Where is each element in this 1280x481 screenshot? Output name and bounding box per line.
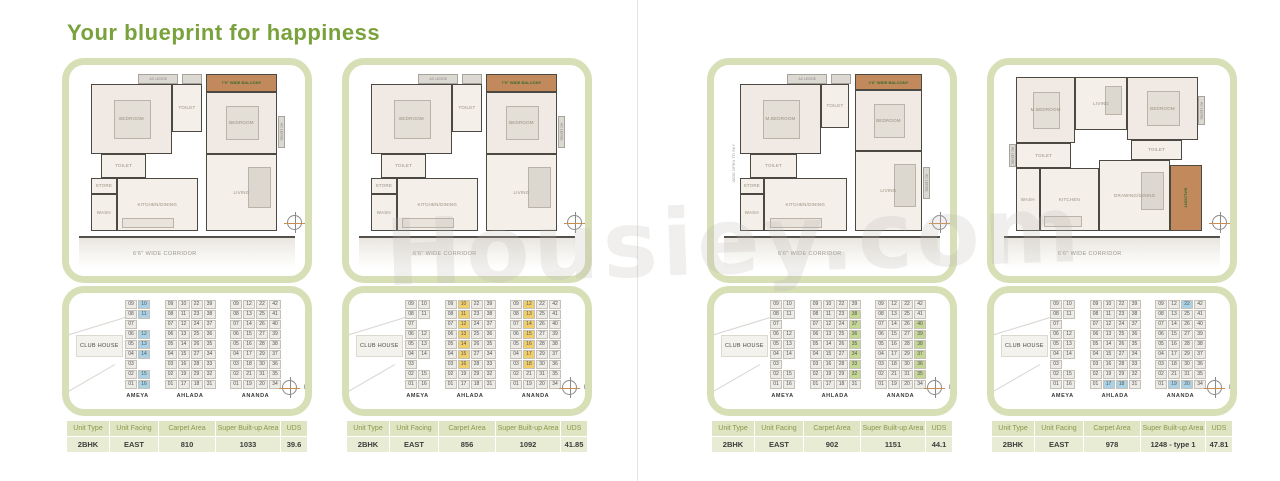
unit-cell: 34 (1129, 350, 1141, 359)
unit-cell: 36 (204, 330, 216, 339)
unit-cell: 12 (823, 320, 835, 329)
unit-cell: 22 (471, 300, 483, 309)
unit-spec-table: Unit TypeUnit FacingCarpet AreaSuper Bui… (992, 421, 1232, 452)
room-bedroom: BEDROOM (1127, 77, 1198, 139)
value-super-built-up-area: 1248 - type 1 (1141, 437, 1205, 452)
unit-cell: 19 (823, 370, 835, 379)
unit-cell: 36 (1129, 330, 1141, 339)
header-super-built-up-area: Super Built-up Area (496, 421, 560, 436)
unit-cell: 25 (1181, 310, 1193, 319)
unit-cell: 22 (1116, 300, 1128, 309)
room-label: 2'6" WIDE BALCONY (869, 80, 909, 85)
unit-cell: 37 (484, 320, 496, 329)
unit-cell: 07 (770, 320, 782, 329)
unit-cell: 07 (810, 320, 822, 329)
compass-icon: N (287, 215, 302, 230)
table-value-row: 2BHKEAST856109241.85 (347, 437, 587, 452)
site-boundary-line (343, 364, 395, 395)
unit-cell: 14 (418, 350, 430, 359)
header-carpet-area: Carpet Area (1084, 421, 1140, 436)
unit-cell: 33 (484, 360, 496, 369)
unit-cell: 15 (178, 350, 190, 359)
unit-cell: 06 (510, 330, 522, 339)
unit-cell: 02 (510, 370, 522, 379)
unit-cell: 16 (1168, 340, 1180, 349)
table-value-row: 2BHKEAST902115144.1 (712, 437, 952, 452)
unit-cell: 08 (875, 310, 887, 319)
unit-cell: 38 (269, 340, 281, 349)
room-toilet: TOILET (821, 84, 849, 129)
room-label: LIVING (1093, 101, 1109, 106)
unit-cell: 21 (523, 370, 535, 379)
ac-ledge-ac-ledge: AC LEDGE (138, 74, 178, 84)
unit-cell: 32 (1129, 370, 1141, 379)
unit-cell: 14 (458, 340, 470, 349)
unit-cell: 31 (1181, 370, 1193, 379)
unit-cell: 10 (418, 300, 430, 309)
unit-cell: 05 (1050, 340, 1062, 349)
unit-cell: 04 (165, 350, 177, 359)
room-label: M.BEDROOM (1031, 107, 1061, 112)
room-label: BEDROOM (119, 116, 144, 121)
value-uds: 41.85 (561, 437, 587, 452)
unit-cell: 11 (783, 310, 795, 319)
unit-cell: 14 (243, 320, 255, 329)
value-carpet-area: 856 (439, 437, 495, 452)
unit-cell: 06 (810, 330, 822, 339)
value-uds: 47.81 (1206, 437, 1232, 452)
unit-cell: 05 (770, 340, 782, 349)
floorplan-panel: AC LEDGE2'6" WIDE BALCONYM.BEDROOMTOILET… (707, 58, 957, 283)
unit-cell: 28 (471, 360, 483, 369)
room-store: STORE (371, 178, 397, 194)
tower-ahlada: 0908070605040302011011121314151619172223… (445, 300, 496, 399)
unit-cell: 41 (269, 310, 281, 319)
unit-cell: 34 (484, 350, 496, 359)
unit-cell: 27 (1116, 350, 1128, 359)
tower-ananda: 0908070605040302011213141516171821192225… (875, 300, 926, 399)
unit-cell: 10 (458, 300, 470, 309)
unit-cell: 33 (849, 360, 861, 369)
unit-cell: 08 (165, 310, 177, 319)
header-unit-facing: Unit Facing (110, 421, 158, 436)
clubhouse-label: CLUB HOUSE (1001, 335, 1048, 357)
unit-cell: 15 (523, 330, 535, 339)
tower-ahlada: 0908070605040302011011121314151619172223… (165, 300, 216, 399)
table-value-row: 2BHKEAST9781248 - type 147.81 (992, 437, 1232, 452)
unit-cell: 15 (1103, 350, 1115, 359)
tower-label: AHLADA (822, 393, 849, 399)
room-toilet: TOILET (101, 154, 147, 178)
unit-cell: 16 (138, 380, 150, 389)
balcony-7-0-wide-balcony: 7'0" WIDE BALCONY (486, 74, 557, 92)
clubhouse-label: CLUB HOUSE (721, 335, 768, 357)
unit-cell: 22 (256, 300, 268, 309)
unit-cell: 02 (445, 370, 457, 379)
center-divider (637, 0, 638, 481)
unit-cell: 04 (1090, 350, 1102, 359)
unit-cell: 28 (536, 340, 548, 349)
unit-cell: 19 (888, 380, 900, 389)
unit-cell: 05 (165, 340, 177, 349)
room-bedroom: BEDROOM (855, 90, 922, 151)
unit-cell: 42 (1194, 300, 1206, 309)
unit-cell: 27 (836, 350, 848, 359)
unit-cell: 27 (471, 350, 483, 359)
unit-cell: 04 (1155, 350, 1167, 359)
unit-cell: 13 (888, 310, 900, 319)
tower-label: AHLADA (1102, 393, 1129, 399)
unit-cell: 19 (1103, 370, 1115, 379)
unit-cell: 01 (125, 380, 137, 389)
room-label: BEDROOM (876, 118, 901, 123)
floorplan-panel: AC LEDGE7'0" WIDE BALCONYBEDROOMTOILETBE… (62, 58, 312, 283)
unit-cell: 25 (1116, 330, 1128, 339)
unit-cell: 07 (1155, 320, 1167, 329)
unit-cell: 02 (125, 370, 137, 379)
unit-cell: 37 (269, 350, 281, 359)
unit-cell: 03 (875, 360, 887, 369)
unit-cell: 11 (823, 310, 835, 319)
value-unit-facing: EAST (110, 437, 158, 452)
floorplan-drawing: AC LEDGE7'0" WIDE BALCONYBEDROOMTOILETBE… (87, 74, 285, 234)
unit-cell: 01 (230, 380, 242, 389)
blueprint-page: Your blueprint for happiness Housiey.com… (0, 0, 1280, 481)
unit-cell: 36 (269, 360, 281, 369)
header-uds: UDS (561, 421, 587, 436)
unit-cell: 11 (458, 310, 470, 319)
value-unit-type: 2BHK (712, 437, 754, 452)
unit-cell: 13 (458, 330, 470, 339)
compass-icon: N (1212, 215, 1227, 230)
unit-cell: 13 (138, 340, 150, 349)
north-label: N (309, 220, 312, 226)
unit-cell: 31 (849, 380, 861, 389)
unit-cell: 01 (165, 380, 177, 389)
floorplan-card-4: M.BEDROOMLIVINGBEDROOMTOILETTOILETWASHKI… (987, 58, 1237, 453)
unit-cell: 03 (1090, 360, 1102, 369)
unit-cell: 08 (405, 310, 417, 319)
unit-cell: 42 (269, 300, 281, 309)
unit-cell: 39 (914, 330, 926, 339)
room-label: AC LEDGE (429, 77, 447, 81)
unit-cell: 17 (888, 350, 900, 359)
room-label: AC LEDGE (149, 77, 167, 81)
unit-cell: 03 (810, 360, 822, 369)
unit-cell: 31 (1129, 380, 1141, 389)
unit-cell: 37 (1129, 320, 1141, 329)
unit-cell: 11 (418, 310, 430, 319)
table-header-row: Unit TypeUnit FacingCarpet AreaSuper Bui… (992, 421, 1232, 436)
floorplan-drawing: AC LEDGE2'6" WIDE BALCONYM.BEDROOMTOILET… (732, 74, 930, 234)
room-label: TOILET (1148, 147, 1165, 152)
unit-cell: 09 (770, 300, 782, 309)
unit-cell: 26 (836, 340, 848, 349)
unit-cell: 09 (1050, 300, 1062, 309)
corridor-label: 6'6" WIDE CORRIDOR (413, 251, 477, 257)
room-living: LIVING (1075, 77, 1126, 130)
north-label: N (1234, 220, 1237, 226)
unit-cell: 18 (523, 360, 535, 369)
towers: 09080706050403020110111213141516AMEYA090… (770, 300, 926, 399)
unit-cell: 16 (783, 380, 795, 389)
header-uds: UDS (281, 421, 307, 436)
unit-cell: 06 (125, 330, 137, 339)
unit-cell: 25 (471, 330, 483, 339)
room-label: KITCHEN (1059, 197, 1080, 202)
tower-ananda: 0908070605040302011213141516171821192225… (1155, 300, 1206, 399)
unit-cell: 38 (549, 340, 561, 349)
unit-cell: 17 (178, 380, 190, 389)
room-label: AC LEDGE (1200, 102, 1204, 120)
unit-cell: 34 (849, 350, 861, 359)
unit-cell: 30 (901, 360, 913, 369)
unit-cell: 17 (523, 350, 535, 359)
unit-cell: 29 (191, 370, 203, 379)
unit-cell: 26 (901, 320, 913, 329)
unit-cell: 07 (510, 320, 522, 329)
floorplan-drawing: AC LEDGE7'0" WIDE BALCONYBEDROOMTOILETBE… (367, 74, 565, 234)
unit-cell: 27 (1181, 330, 1193, 339)
unit-cell: 05 (445, 340, 457, 349)
room-bedroom: BEDROOM (486, 92, 557, 154)
room-wash: WASH (371, 194, 397, 231)
unit-cell: 14 (823, 340, 835, 349)
unit-cell: 19 (523, 380, 535, 389)
towers: 09080706050403020110111213141516AMEYA090… (405, 300, 561, 399)
unit-cell: 05 (510, 340, 522, 349)
value-unit-type: 2BHK (347, 437, 389, 452)
unit-cell: 07 (125, 320, 137, 329)
unit-cell: 29 (256, 350, 268, 359)
unit-cell: 30 (1181, 360, 1193, 369)
unit-cell: 03 (405, 360, 417, 369)
unit-cell: 36 (549, 360, 561, 369)
unit-cell: 40 (549, 320, 561, 329)
unit-cell: 40 (269, 320, 281, 329)
unit-cell: 13 (243, 310, 255, 319)
room-label: TOILET (115, 163, 132, 168)
unit-cell: 42 (549, 300, 561, 309)
unit-cell: 18 (1168, 360, 1180, 369)
unit-cell: 12 (1103, 320, 1115, 329)
unit-cell: 35 (269, 370, 281, 379)
unit-cell: 12 (888, 300, 900, 309)
unit-cell: 06 (1155, 330, 1167, 339)
unit-cell: 39 (484, 300, 496, 309)
unit-cell: 04 (230, 350, 242, 359)
sitemap-panel: CLUB HOUSE 09080706050403020110111213141… (987, 286, 1237, 416)
unit-cell: 41 (549, 310, 561, 319)
unit-cell: 23 (1116, 310, 1128, 319)
clubhouse-label: CLUB HOUSE (356, 335, 403, 357)
compass-icon: N (562, 380, 577, 395)
header-super-built-up-area: Super Built-up Area (861, 421, 925, 436)
unit-cell: 38 (1129, 310, 1141, 319)
unit-cell: 28 (1181, 340, 1193, 349)
unit-cell: 38 (1194, 340, 1206, 349)
compass-icon: N (927, 380, 942, 395)
compass-icon: N (932, 215, 947, 230)
north-label: N (954, 220, 957, 226)
unit-cell: 03 (1050, 360, 1062, 369)
tower-label: AHLADA (177, 393, 204, 399)
unit-cell: 09 (230, 300, 242, 309)
site-boundary-line (63, 364, 115, 395)
table-header-row: Unit TypeUnit FacingCarpet AreaSuper Bui… (67, 421, 307, 436)
unit-cell: 41 (914, 310, 926, 319)
unit-cell: 20 (536, 380, 548, 389)
value-super-built-up-area: 1033 (216, 437, 280, 452)
room-bedroom: BEDROOM (371, 84, 452, 154)
unit-cell: 12 (523, 300, 535, 309)
unit-cell: 36 (484, 330, 496, 339)
unit-cell: 18 (191, 380, 203, 389)
unit-cell: 24 (471, 320, 483, 329)
unit-cell: 38 (849, 310, 861, 319)
unit-cell: 04 (405, 350, 417, 359)
unit-cell: 03 (125, 360, 137, 369)
compass-icon: N (1207, 380, 1222, 395)
unit-cell: 02 (810, 370, 822, 379)
room-label: STORE (376, 183, 392, 188)
unit-cell: 02 (1050, 370, 1062, 379)
unit-cell: 23 (836, 310, 848, 319)
unit-cell: 28 (1116, 360, 1128, 369)
room-label: LIVING (513, 190, 529, 195)
room-kitchen-dining: KITCHEN/DINING (397, 178, 478, 231)
unit-cell: 03 (230, 360, 242, 369)
compass-icon: N (567, 215, 582, 230)
unit-cell: 27 (901, 330, 913, 339)
room-label: TOILET (765, 163, 782, 168)
unit-cell: 06 (230, 330, 242, 339)
ac-ledge-ac-ledge: AC LEDGE (278, 116, 285, 148)
room-wash: WASH (740, 194, 764, 231)
unit-cell: 02 (405, 370, 417, 379)
unit-cell: 13 (1168, 310, 1180, 319)
open-to-sky-wide-open-to-sky: WIDE OPEN TO SKY (730, 119, 738, 207)
unit-cell: 08 (810, 310, 822, 319)
unit-cell: 06 (165, 330, 177, 339)
unit-cell: 09 (1090, 300, 1102, 309)
tower-label: AMEYA (406, 393, 428, 399)
unit-cell: 05 (1090, 340, 1102, 349)
unit-cell: 04 (875, 350, 887, 359)
floorplan-card-2: AC LEDGE7'0" WIDE BALCONYBEDROOMTOILETBE… (342, 58, 592, 453)
room-label: 7'0" WIDE BALCONY (502, 80, 542, 85)
unit-cell: 37 (549, 350, 561, 359)
unit-cell: 08 (1050, 310, 1062, 319)
ac-ledge-ac-ledge: AC LEDGE (1009, 144, 1016, 166)
unit-cell: 10 (1103, 300, 1115, 309)
tower-label: AMEYA (1051, 393, 1073, 399)
room-label: AC LEDGE (280, 123, 284, 141)
value-unit-facing: EAST (755, 437, 803, 452)
unit-cell: 12 (458, 320, 470, 329)
header-carpet-area: Carpet Area (439, 421, 495, 436)
room-label: KITCHEN/DINING (785, 202, 825, 207)
header-carpet-area: Carpet Area (159, 421, 215, 436)
unit-cell: 19 (178, 370, 190, 379)
room-label: AC LEDGE (798, 77, 816, 81)
unit-cell: 23 (191, 310, 203, 319)
unit-cell: 06 (1050, 330, 1062, 339)
unit-cell: 29 (836, 370, 848, 379)
unit-cell: 36 (849, 330, 861, 339)
unit-cell: 01 (1050, 380, 1062, 389)
unit-cell: 07 (875, 320, 887, 329)
ac-ledge-ac-ledge: AC LEDGE (923, 167, 930, 199)
clubhouse-label: CLUB HOUSE (76, 335, 123, 357)
unit-cell: 12 (243, 300, 255, 309)
unit-cell: 04 (125, 350, 137, 359)
unit-cell: 15 (888, 330, 900, 339)
ac-ledge-ac-ledge: AC LEDGE (558, 116, 565, 148)
ac-ledge-area (831, 74, 851, 84)
unit-cell: 12 (1168, 300, 1180, 309)
ac-ledge-ac-ledge: AC LEDGE (787, 74, 827, 84)
unit-cell: 10 (823, 300, 835, 309)
unit-cell: 07 (1090, 320, 1102, 329)
unit-cell: 15 (458, 350, 470, 359)
unit-cell: 09 (1155, 300, 1167, 309)
unit-cell: 25 (536, 310, 548, 319)
unit-cell: 03 (770, 360, 782, 369)
tower-label: AMEYA (126, 393, 148, 399)
unit-cell: 40 (1194, 320, 1206, 329)
site-boundary-line (988, 364, 1040, 395)
unit-cell: 11 (1063, 310, 1075, 319)
value-unit-facing: EAST (1035, 437, 1083, 452)
unit-cell: 16 (1103, 360, 1115, 369)
unit-cell: 27 (191, 350, 203, 359)
unit-cell: 39 (204, 300, 216, 309)
unit-cell: 07 (1050, 320, 1062, 329)
site-boundary-line (708, 364, 760, 395)
header-unit-type: Unit Type (347, 421, 389, 436)
unit-cell: 14 (1063, 350, 1075, 359)
unit-cell: 26 (191, 340, 203, 349)
value-uds: 44.1 (926, 437, 952, 452)
unit-cell: 28 (191, 360, 203, 369)
room-bedroom: BEDROOM (91, 84, 172, 154)
ac-ledge-ac-ledge: AC LEDGE (1198, 96, 1205, 125)
unit-cell: 19 (1168, 380, 1180, 389)
unit-cell: 06 (1090, 330, 1102, 339)
unit-cell: 01 (445, 380, 457, 389)
unit-cell: 16 (523, 340, 535, 349)
unit-cell: 13 (178, 330, 190, 339)
value-carpet-area: 902 (804, 437, 860, 452)
header-super-built-up-area: Super Built-up Area (216, 421, 280, 436)
unit-cell: 13 (523, 310, 535, 319)
room-label: TOILET (179, 105, 196, 110)
room-living: LIVING (206, 154, 277, 231)
unit-cell: 09 (405, 300, 417, 309)
unit-cell: 14 (138, 350, 150, 359)
unit-cell: 09 (875, 300, 887, 309)
unit-cell: 35 (1194, 370, 1206, 379)
unit-cell: 19 (458, 370, 470, 379)
unit-cell: 18 (1116, 380, 1128, 389)
unit-cell: 39 (1129, 300, 1141, 309)
header-unit-facing: Unit Facing (390, 421, 438, 436)
unit-cell: 24 (836, 320, 848, 329)
unit-cell: 38 (484, 310, 496, 319)
unit-cell: 11 (1103, 310, 1115, 319)
unit-cell: 23 (471, 310, 483, 319)
